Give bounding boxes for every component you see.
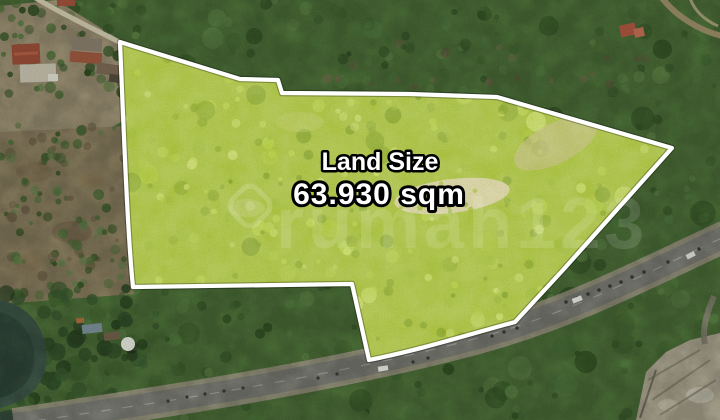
aerial-photo: rumah123 Land Size 63.930 sqm bbox=[0, 0, 720, 420]
land-size-value: 63.930 sqm bbox=[293, 178, 465, 211]
land-listing-photo: rumah123 Land Size 63.930 sqm bbox=[0, 0, 720, 420]
land-size-label: Land Size bbox=[322, 148, 439, 176]
